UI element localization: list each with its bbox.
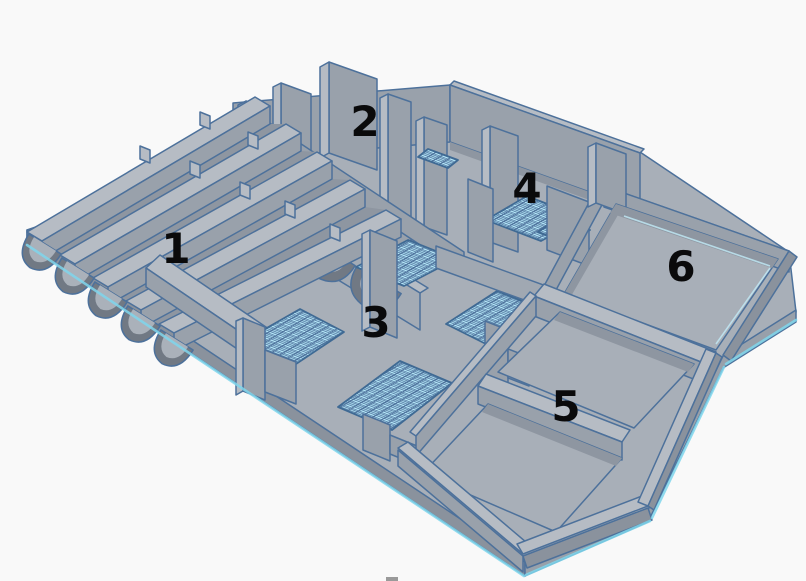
- card-post: [243, 318, 265, 400]
- wall-slab-side: [416, 117, 424, 231]
- section-label-2: 2: [350, 101, 379, 143]
- section-label-3: 3: [361, 302, 390, 344]
- cutoff-ui-artifact: [386, 577, 398, 581]
- section-label-4: 4: [512, 168, 541, 210]
- section-label-6: 6: [666, 246, 695, 288]
- card-post: [468, 179, 493, 262]
- ridge-fin: [140, 146, 150, 163]
- cad-3d-viewport[interactable]: 1 2 3 4 5 6: [0, 0, 806, 581]
- wall-slab: [424, 117, 447, 235]
- section-label-5: 5: [551, 386, 580, 428]
- corner-post: [596, 143, 626, 214]
- corner-post-side: [588, 143, 596, 207]
- section-label-1: 1: [161, 228, 190, 270]
- ridge-fin: [200, 112, 210, 129]
- wall-slab-side: [320, 62, 329, 158]
